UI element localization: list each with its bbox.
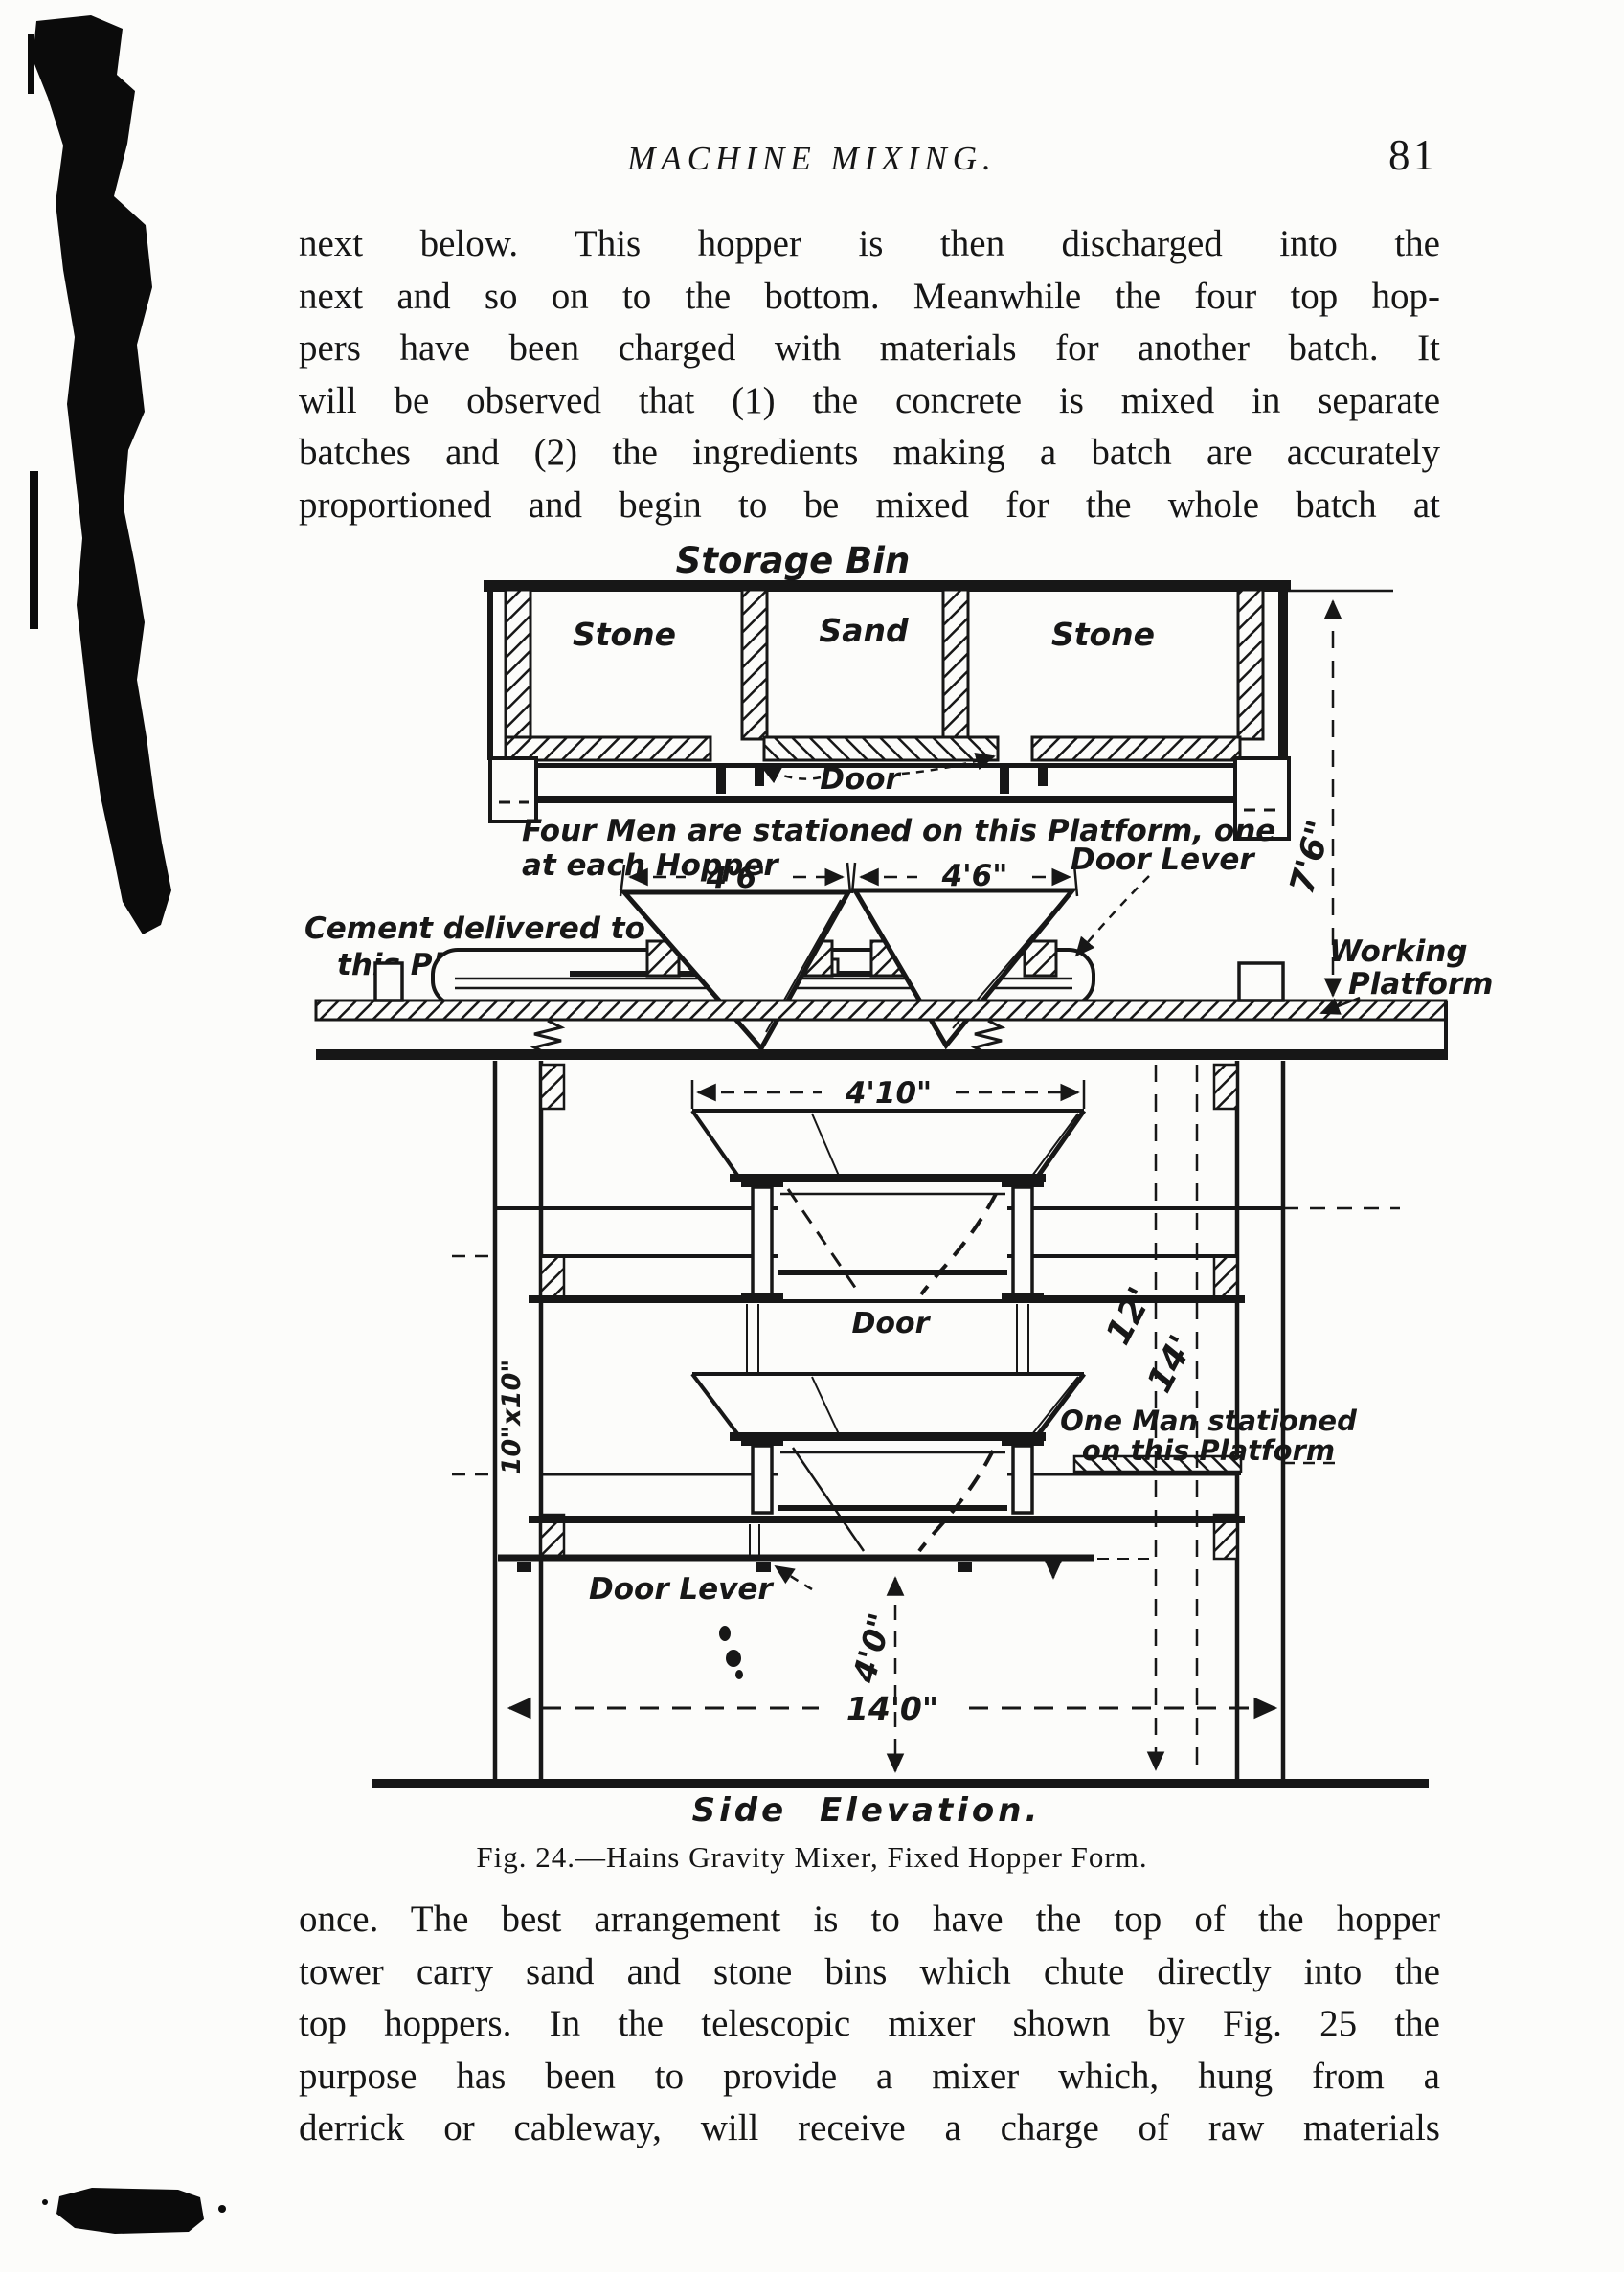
label-door-mid: Door	[852, 1307, 932, 1340]
label-bin-stone-right: Stone	[1051, 616, 1155, 653]
label-door-lever-bottom: Door Lever	[589, 1572, 774, 1607]
label-dim-12: 12'	[1098, 1281, 1161, 1351]
label-bin-door: Door	[820, 762, 901, 797]
door-lever-arrow	[776, 1566, 812, 1589]
label-bin-sand: Sand	[819, 612, 909, 649]
paragraph-line: top hoppers. In the telescopic mixer sho…	[299, 1998, 1440, 2051]
label-cement-1: Cement delivered to	[304, 911, 645, 946]
book-page: MACHINE MIXING. 81 next below. This hopp…	[0, 0, 1624, 2272]
paragraph-line: purpose has been to provide a mixer whic…	[299, 2051, 1440, 2103]
label-dim-4-0: 4'0"	[845, 1609, 899, 1688]
label-door-lever-top: Door Lever	[1071, 843, 1255, 877]
paragraph-line: once. The best arrangement is to have th…	[299, 1894, 1440, 1946]
figure-caption: Fig. 24.—Hains Gravity Mixer, Fixed Hopp…	[0, 1840, 1624, 1875]
paragraph-line: tower carry sand and stone bins which ch…	[299, 1946, 1440, 1999]
label-post-size: 10"x10"	[497, 1360, 527, 1475]
label-side-elevation: Side Elevation.	[692, 1791, 1042, 1830]
label-one-man-2: on this Platform	[1082, 1434, 1335, 1467]
scan-artifact-bottom	[42, 2188, 226, 2234]
paragraph-line: derrick or cableway, will receive a char…	[299, 2103, 1440, 2155]
scan-artifact-left	[28, 15, 171, 934]
label-dim-7-6: 7'6"	[1283, 816, 1340, 897]
label-dim-14: 14'	[1139, 1329, 1202, 1399]
bottom-paragraph: once. The best arrangement is to have th…	[299, 1894, 1440, 2155]
label-dim-14-0: 14'0"	[846, 1690, 938, 1727]
label-working-2: Platform	[1348, 967, 1493, 1001]
label-dim-4-10: 4'10"	[845, 1076, 932, 1111]
label-working-1: Working	[1329, 934, 1468, 969]
label-storage-bin-title: Storage Bin	[676, 540, 911, 581]
label-bin-stone-left: Stone	[573, 616, 676, 653]
label-one-man-1: One Man stationed	[1060, 1405, 1357, 1437]
